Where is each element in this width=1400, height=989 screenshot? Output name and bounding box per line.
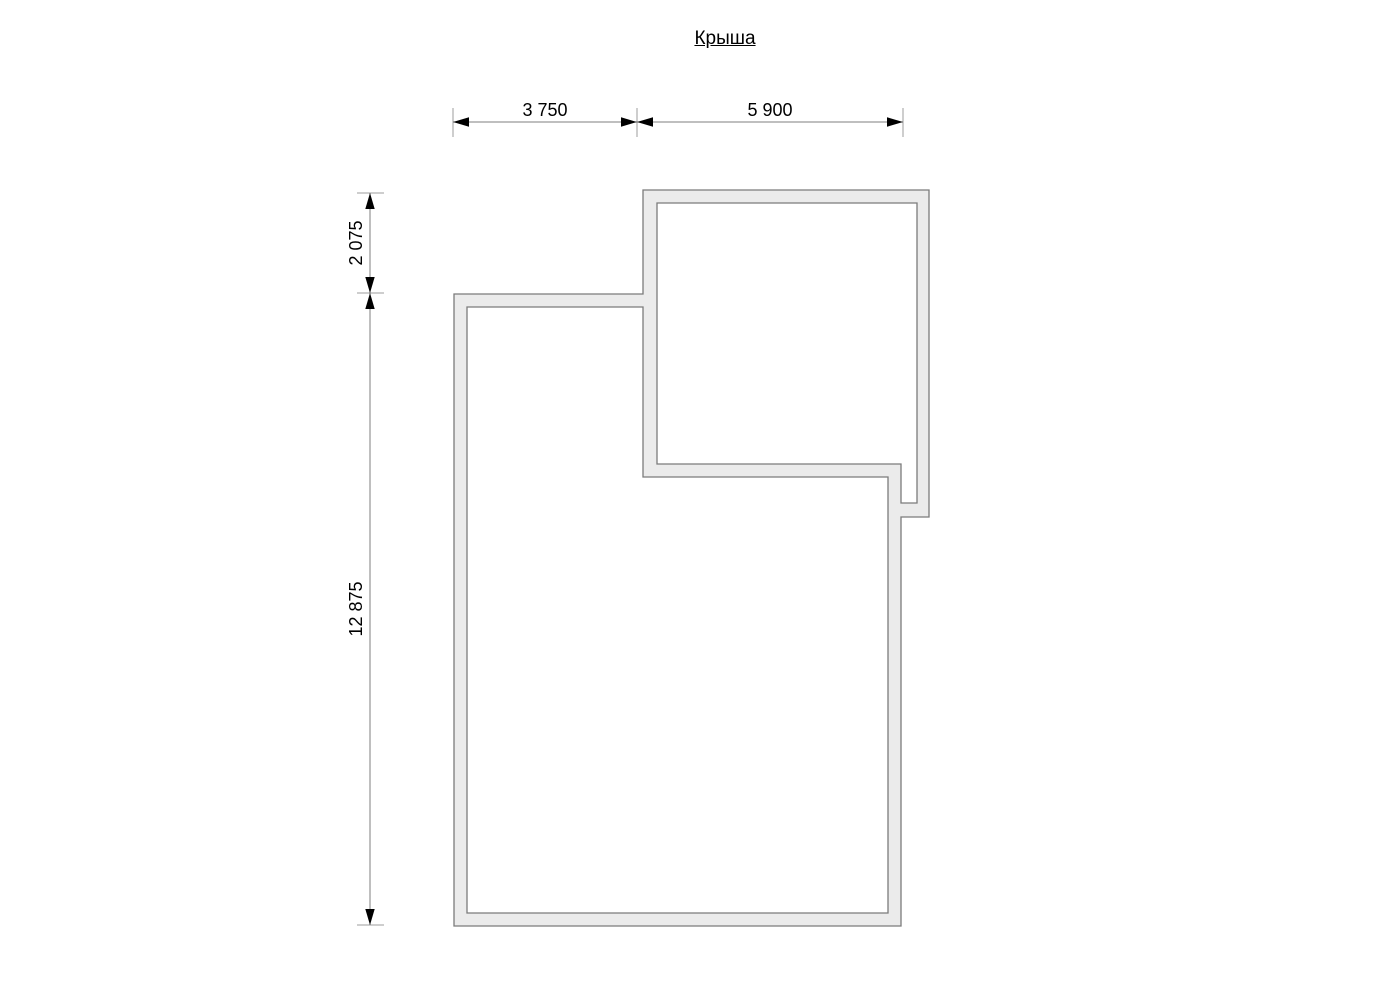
dimension-horizontal: 3 750 5 900	[453, 100, 903, 137]
dim-label-height-bottom: 12 875	[346, 581, 366, 636]
roof-plan-drawing: 3 750 5 900 2 075 12 875	[0, 0, 1400, 989]
dim-arrow-mid-right-tip	[621, 117, 637, 126]
dim-arrow-mid-left-tip	[637, 117, 653, 126]
plan-title: Крыша	[694, 28, 755, 50]
dim-arrow-mid-up-tip	[365, 293, 374, 309]
dim-arrow-top	[365, 193, 374, 209]
dim-arrow-right	[887, 117, 903, 126]
dim-label-width-left: 3 750	[522, 100, 567, 120]
drawing-canvas: Крыша 3 750 5 900 2 075	[0, 0, 1400, 989]
dim-label-height-top: 2 075	[346, 220, 366, 265]
dimension-vertical: 2 075 12 875	[346, 193, 384, 925]
roof-outline	[454, 190, 929, 926]
dim-arrow-left	[453, 117, 469, 126]
dim-label-width-right: 5 900	[747, 100, 792, 120]
dim-arrow-bottom	[365, 909, 374, 925]
dim-arrow-mid-down-tip	[365, 277, 374, 293]
